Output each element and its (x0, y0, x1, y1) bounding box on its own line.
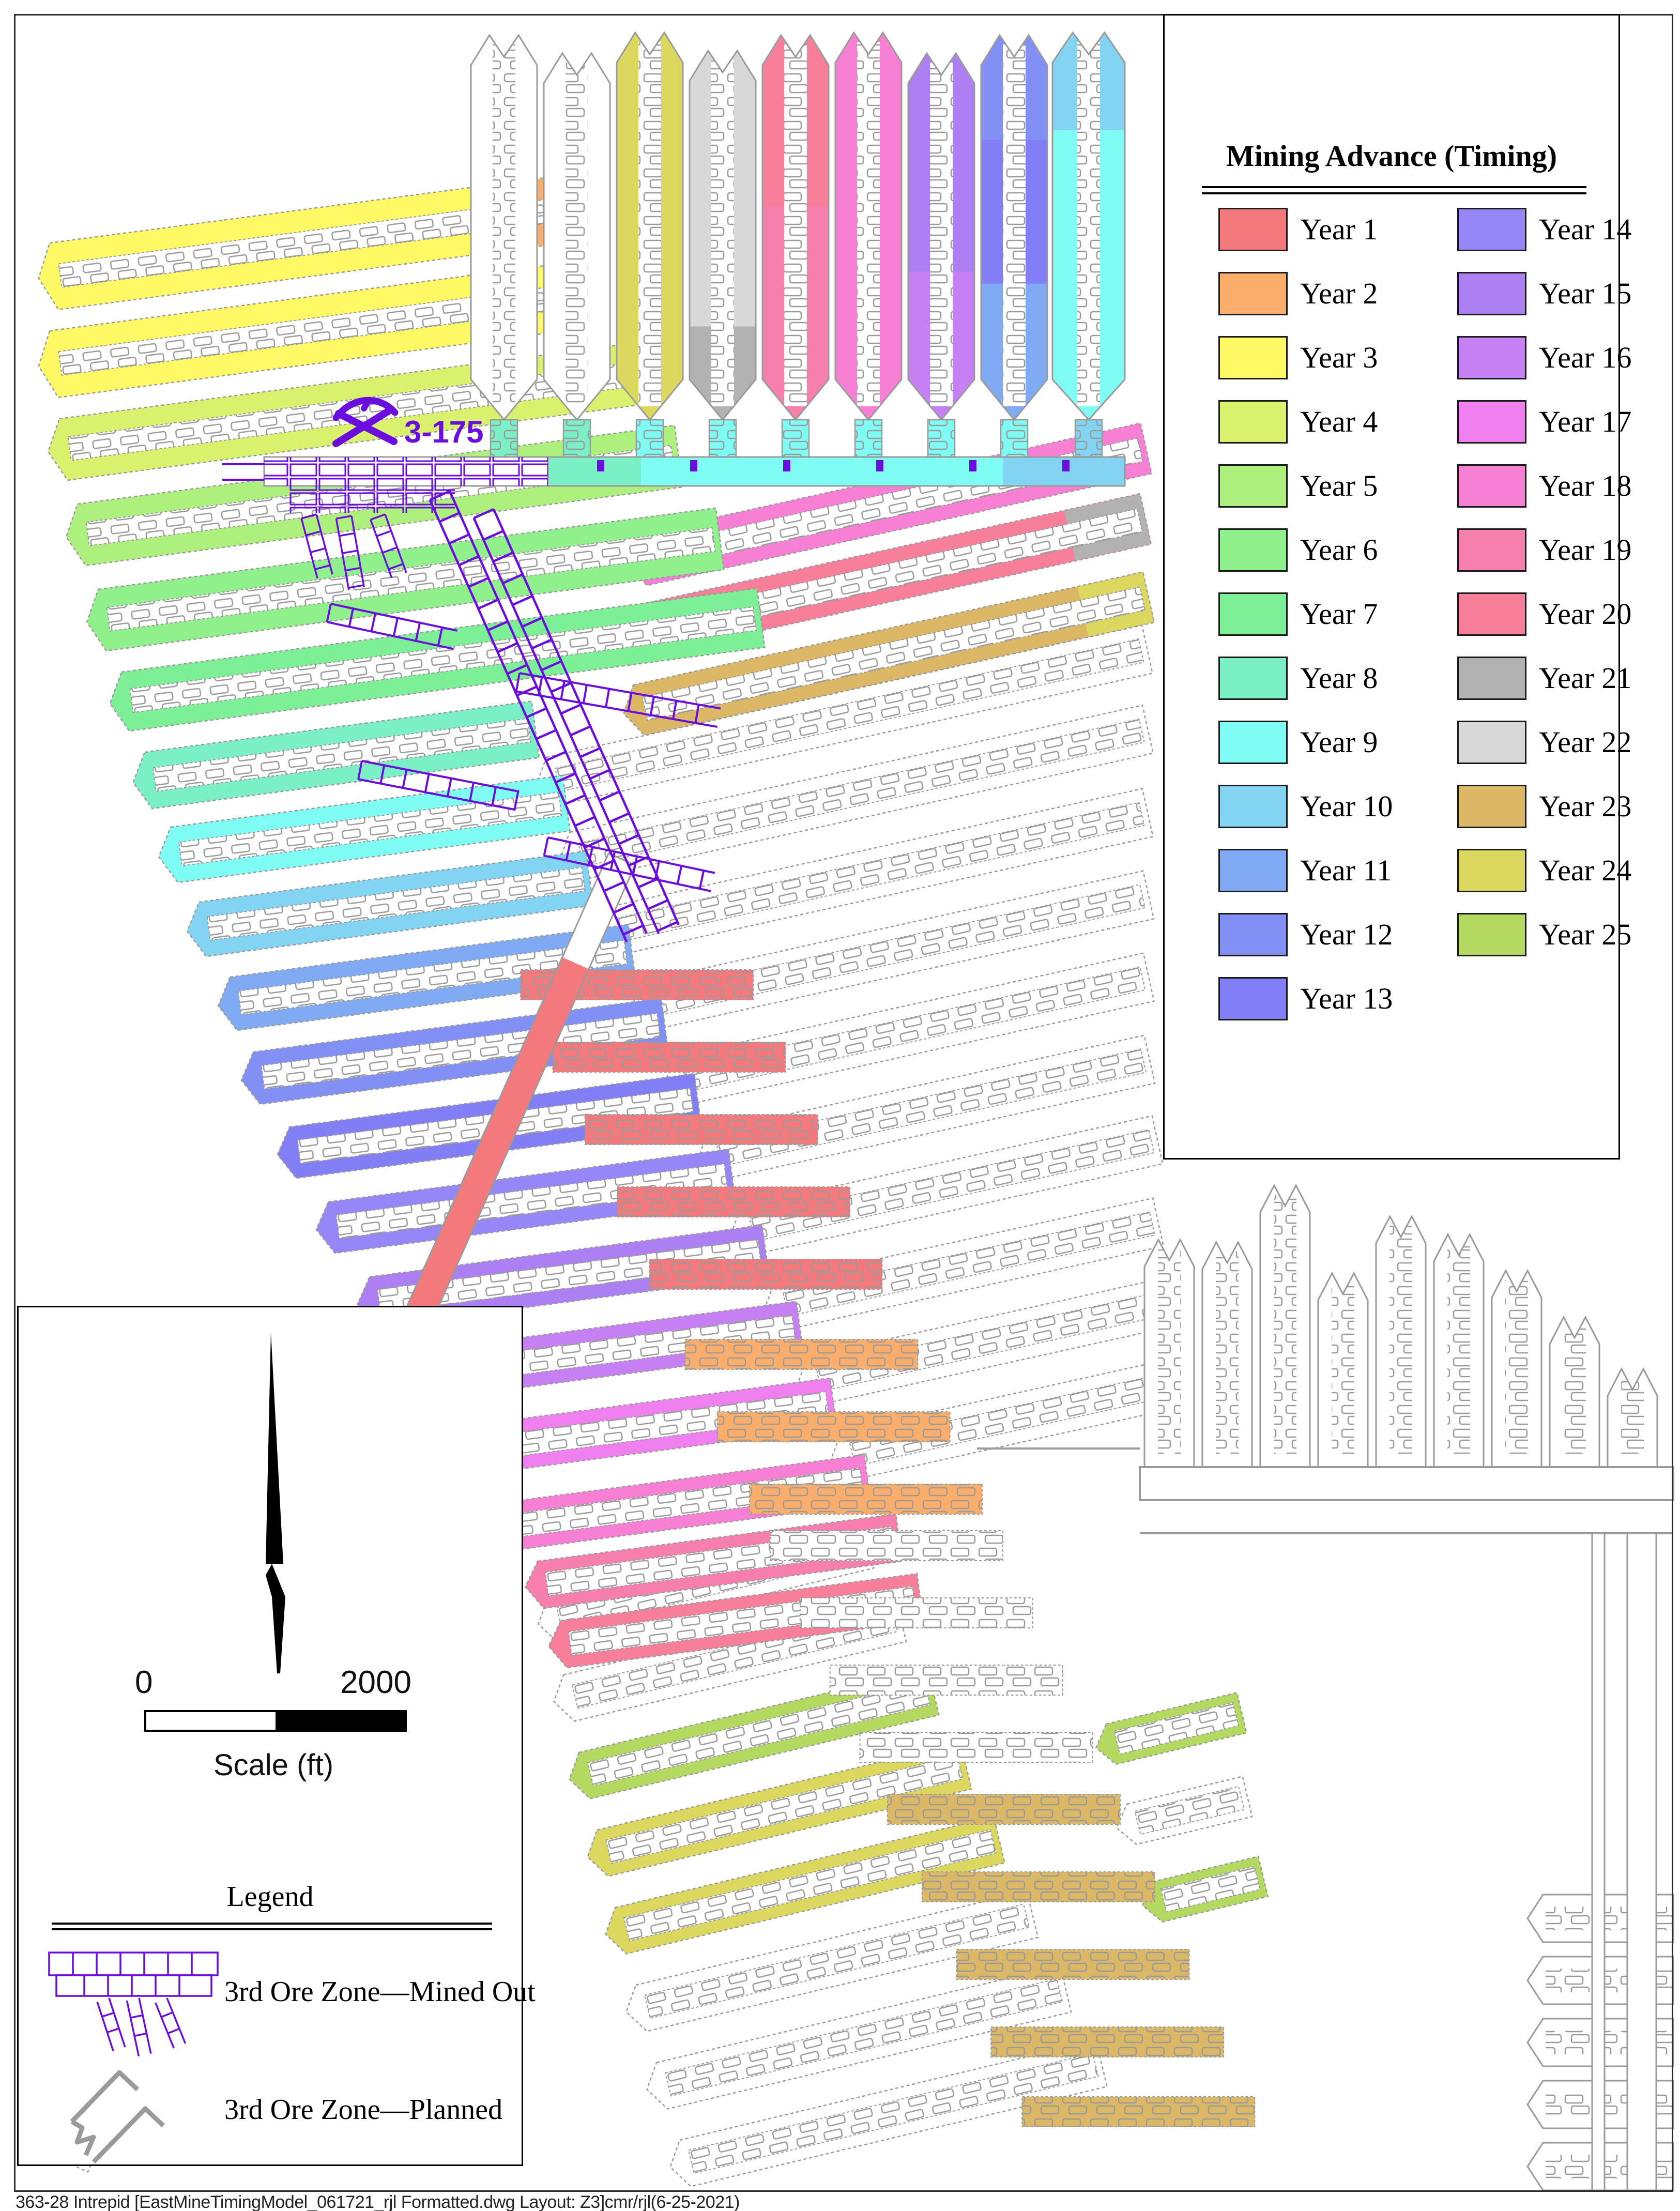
legend-title-rule (52, 1923, 492, 1930)
legend-label: Year 2 (1300, 272, 1378, 315)
legend-label: Year 5 (1300, 464, 1378, 508)
footer-text: 363-28 Intrepid [EastMineTimingModel_061… (16, 2192, 1153, 2211)
drawing-sheet: 3-175 Mining Advance (Timing) Year 1Year… (0, 0, 1680, 2211)
legend-label: Year 25 (1539, 913, 1631, 956)
scale-bar (144, 1710, 407, 1732)
scale-end-label: 2000 (308, 1664, 411, 1701)
scale-bar-filled-half (276, 1712, 405, 1730)
legend-swatch (1457, 785, 1526, 828)
legend-swatch (1218, 592, 1288, 636)
legend-swatch (1218, 272, 1288, 315)
legend-swatch (1457, 208, 1526, 251)
legend-swatch (1457, 272, 1526, 315)
legend-swatch (1218, 721, 1288, 764)
legend-label: Year 9 (1300, 721, 1378, 764)
legend-swatch (1457, 464, 1526, 508)
legend-swatch (1218, 464, 1288, 508)
legend-label: Year 21 (1539, 657, 1631, 700)
year-entries: Year 1Year 2Year 3Year 4Year 5Year 6Year… (1214, 208, 1607, 1087)
mining-advance-title-rule (1202, 186, 1586, 194)
legend-label: Year 19 (1539, 528, 1631, 572)
legend-label: Year 22 (1539, 721, 1631, 764)
planned-outline-icon (63, 2060, 223, 2168)
mining-advance-legend: Mining Advance (Timing) Year 1Year 2Year… (1163, 14, 1620, 1160)
north-arrow-icon (241, 1332, 308, 1679)
legend-swatch (1218, 400, 1288, 444)
legend-label: Year 3 (1300, 336, 1378, 379)
legend-swatch (1218, 208, 1288, 251)
legend-swatch (1457, 913, 1526, 956)
legend-swatch (1457, 336, 1526, 379)
legend-label: Year 14 (1539, 208, 1631, 251)
legend-title: Legend (19, 1880, 522, 1913)
map-key-inset: 0 2000 Scale (ft) Legend 3rd Ore Zone—Mi… (17, 1306, 523, 2166)
legend-label: Year 13 (1300, 977, 1393, 1020)
legend-swatch (1457, 849, 1526, 892)
top-panels (471, 28, 1125, 458)
legend-label: Year 1 (1300, 208, 1378, 251)
mining-advance-title: Mining Advance (Timing) (1165, 139, 1618, 173)
legend-label: Year 11 (1300, 849, 1392, 892)
legend-label: Year 24 (1539, 849, 1631, 892)
mined-out-workings-icon (47, 1948, 223, 2060)
legend-label: Year 15 (1539, 272, 1631, 315)
legend-swatch (1218, 977, 1288, 1020)
legend-swatch (1218, 913, 1288, 956)
legend-swatch (1457, 400, 1526, 444)
legend-label: Year 18 (1539, 464, 1631, 508)
scale-caption: Scale (ft) (144, 1748, 403, 1782)
shaft-label: 3-175 (404, 415, 483, 449)
bottom-right-region (1528, 1533, 1673, 2190)
legend-label: Year 23 (1539, 785, 1631, 828)
legend-label: Year 17 (1539, 400, 1631, 444)
legend-label: Year 20 (1539, 592, 1631, 636)
legend-label: Year 8 (1300, 657, 1378, 700)
legend-swatch (1457, 528, 1526, 572)
legend-item-mined-out-label: 3rd Ore Zone—Mined Out (224, 1975, 536, 2008)
legend-swatch (1457, 721, 1526, 764)
legend-swatch (1218, 336, 1288, 379)
legend-label: Year 7 (1300, 592, 1378, 636)
legend-swatch (1218, 657, 1288, 700)
scale-start-label: 0 (135, 1664, 152, 1701)
legend-label: Year 16 (1539, 336, 1631, 379)
legend-swatch (1457, 592, 1526, 636)
top-corridor (548, 457, 1125, 486)
legend-label: Year 4 (1300, 400, 1378, 444)
legend-swatch (1457, 657, 1526, 700)
legend-swatch (1218, 849, 1288, 892)
legend-swatch (1218, 785, 1288, 828)
legend-label: Year 10 (1300, 785, 1393, 828)
legend-item-planned-label: 3rd Ore Zone—Planned (224, 2093, 502, 2126)
legend-label: Year 12 (1300, 913, 1393, 956)
legend-label: Year 6 (1300, 528, 1378, 572)
legend-swatch (1218, 528, 1288, 572)
